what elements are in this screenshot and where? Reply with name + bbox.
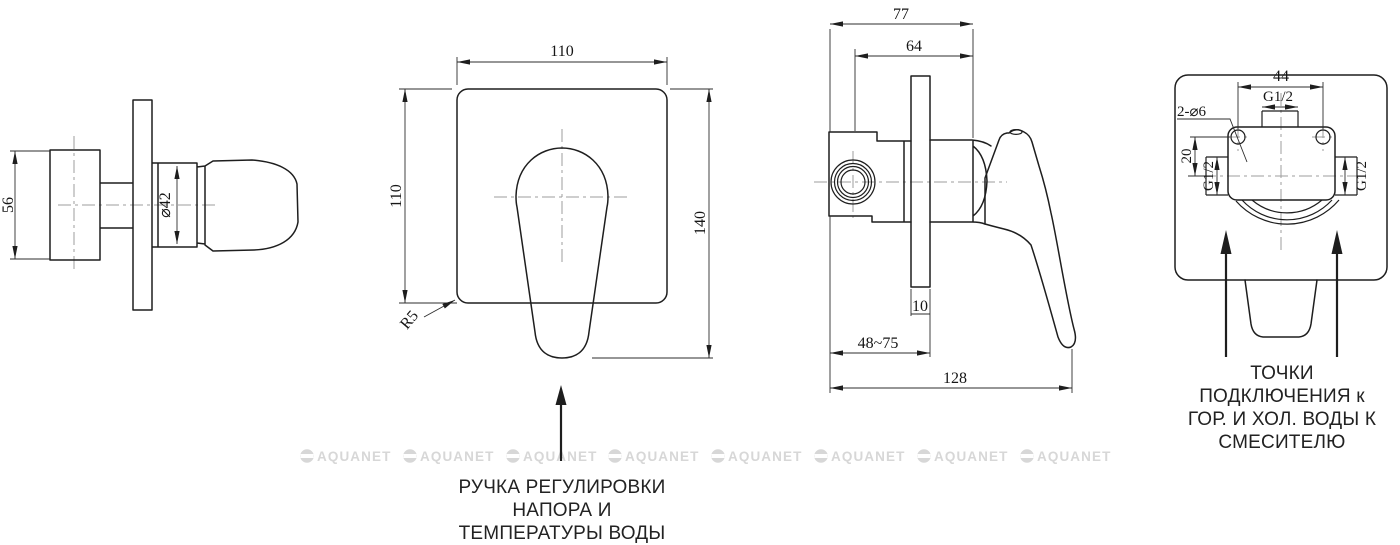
- dim-56-label: 56: [0, 197, 17, 213]
- dim-110w-extensions: [457, 57, 667, 85]
- back-annotation-line4: СМЕСИТЕЛЮ: [1218, 432, 1345, 453]
- dim-110h-label: 110: [388, 184, 405, 207]
- view-side: 56 ⌀42: [0, 100, 298, 310]
- logo-slit: [609, 454, 622, 458]
- watermark: AQUANET: [608, 449, 699, 464]
- watermark-text: AQUANET: [1037, 449, 1111, 464]
- dim-g12-top-label: G1/2: [1263, 89, 1293, 105]
- watermark: AQUANET: [711, 449, 802, 464]
- drawing-canvas: AQUANET AQUANET AQUANET AQUANET AQUANET …: [0, 0, 1400, 545]
- logo-slit: [1021, 454, 1034, 458]
- watermark: AQUANET: [300, 449, 391, 464]
- watermark-row: AQUANET AQUANET AQUANET AQUANET AQUANET …: [300, 449, 1111, 464]
- dim-g12-left-label: G1/2: [1201, 161, 1217, 191]
- view-profile: 77 64 10 48~75 128: [814, 6, 1075, 393]
- dim-128-label: 128: [943, 370, 967, 387]
- watermark: AQUANET: [403, 449, 494, 464]
- watermark: AQUANET: [1020, 449, 1111, 464]
- dim-g12-right-label: G1/2: [1354, 161, 1370, 191]
- watermark-text: AQUANET: [728, 449, 802, 464]
- front-annotation-line2: НАПОРА И: [512, 500, 611, 521]
- dim-64-label: 64: [906, 38, 922, 55]
- watermark: AQUANET: [814, 449, 905, 464]
- cartridge-arcs: [1236, 200, 1339, 224]
- watermark-text: AQUANET: [625, 449, 699, 464]
- arrow-up-icon: [1221, 230, 1232, 254]
- watermark-text: AQUANET: [934, 449, 1008, 464]
- front-annotation-line3: ТЕМПЕРАТУРЫ ВОДЫ: [459, 523, 666, 544]
- profile-handle: [985, 130, 1075, 348]
- back-handle-silhouette: [1245, 280, 1317, 337]
- back-centerlines: [1203, 93, 1360, 253]
- back-annotation-line1: ТОЧКИ: [1250, 363, 1314, 384]
- dim-r5-label: R5: [397, 307, 422, 332]
- dim-110w-label: 110: [550, 43, 573, 60]
- profile-body-outline: [829, 132, 911, 222]
- dim-140-label: 140: [692, 211, 709, 235]
- dim-44-label: 44: [1273, 68, 1289, 85]
- watermark: AQUANET: [506, 449, 597, 464]
- watermark-text: AQUANET: [831, 449, 905, 464]
- side-centerlines: [58, 136, 216, 273]
- logo-slit: [918, 454, 931, 458]
- watermark: AQUANET: [917, 449, 1008, 464]
- logo-slit: [815, 454, 828, 458]
- logo-slit: [712, 454, 725, 458]
- logo-slit: [404, 454, 417, 458]
- dim-20-label: 20: [1179, 149, 1195, 164]
- dim-holes-label: 2-⌀6: [1177, 104, 1207, 120]
- logo-slit: [301, 454, 314, 458]
- watermark-text: AQUANET: [420, 449, 494, 464]
- watermark-text: AQUANET: [317, 449, 391, 464]
- logo-slit: [507, 454, 520, 458]
- arrow-up-icon: [1332, 230, 1343, 254]
- front-centerlines: [494, 129, 630, 262]
- view-back: 44 G1/2 2-⌀6 20 G1/2 G1/2 ТОЧКИ ПОДКЛЮЧЕ…: [1175, 68, 1387, 453]
- dim-10-label: 10: [912, 298, 928, 315]
- front-annotation-line1: РУЧКА РЕГУЛИРОВКИ: [458, 477, 665, 498]
- dim-77-label: 77: [893, 6, 909, 23]
- dim-110h-extensions: [399, 89, 457, 303]
- technical-drawing-page: AQUANET AQUANET AQUANET AQUANET AQUANET …: [0, 0, 1400, 545]
- arrow-up-icon: [556, 385, 567, 405]
- back-annotation-line2: ПОДКЛЮЧЕНИЯ к: [1199, 386, 1365, 407]
- back-annotation-line3: ГОР. И ХОЛ. ВОДЫ К: [1188, 409, 1376, 430]
- view-front: 110 110 140 R5 РУЧКА РЕГУЛИРОВКИ НАПОРА …: [388, 43, 713, 544]
- dim-diameter-label: ⌀42: [157, 192, 174, 218]
- dim-48-75-label: 48~75: [858, 335, 899, 352]
